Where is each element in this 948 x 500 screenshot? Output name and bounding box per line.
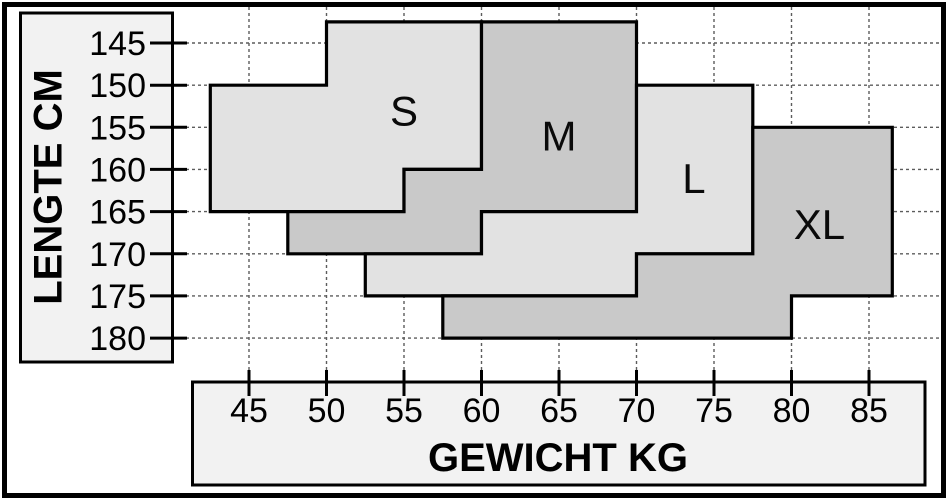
y-tick-label-145: 145: [89, 25, 146, 63]
x-tick-label-50: 50: [308, 392, 346, 430]
x-tick-label-60: 60: [463, 392, 501, 430]
y-axis-title: LENGTE CM: [27, 69, 71, 305]
y-tick-label-180: 180: [89, 320, 146, 358]
x-tick-label-55: 55: [385, 392, 423, 430]
x-tick-label-75: 75: [695, 392, 733, 430]
y-tick-label-155: 155: [89, 109, 146, 147]
y-tick-label-170: 170: [89, 236, 146, 274]
region-label-xl: XL: [794, 201, 845, 248]
region-label-s: S: [390, 87, 418, 134]
y-tick-label-160: 160: [89, 151, 146, 189]
region-label-l: L: [682, 155, 705, 202]
y-axis: LENGTE CM 145150155160165170175180: [21, 13, 188, 362]
x-tick-label-65: 65: [540, 392, 578, 430]
x-axis: GEWICHT KG 455055606570758085: [193, 370, 926, 485]
x-tick-label-70: 70: [618, 392, 656, 430]
y-tick-label-165: 165: [89, 194, 146, 232]
size-chart: SMLXL LENGTE CM 145150155160165170175180…: [0, 0, 948, 500]
x-tick-label-45: 45: [230, 392, 268, 430]
y-tick-label-175: 175: [89, 278, 146, 316]
size-chart-figure: SMLXL LENGTE CM 145150155160165170175180…: [0, 0, 948, 500]
x-tick-label-85: 85: [850, 392, 888, 430]
region-label-m: M: [542, 113, 577, 160]
x-axis-title: GEWICHT KG: [428, 436, 688, 480]
y-tick-label-150: 150: [89, 67, 146, 105]
x-tick-label-80: 80: [773, 392, 811, 430]
